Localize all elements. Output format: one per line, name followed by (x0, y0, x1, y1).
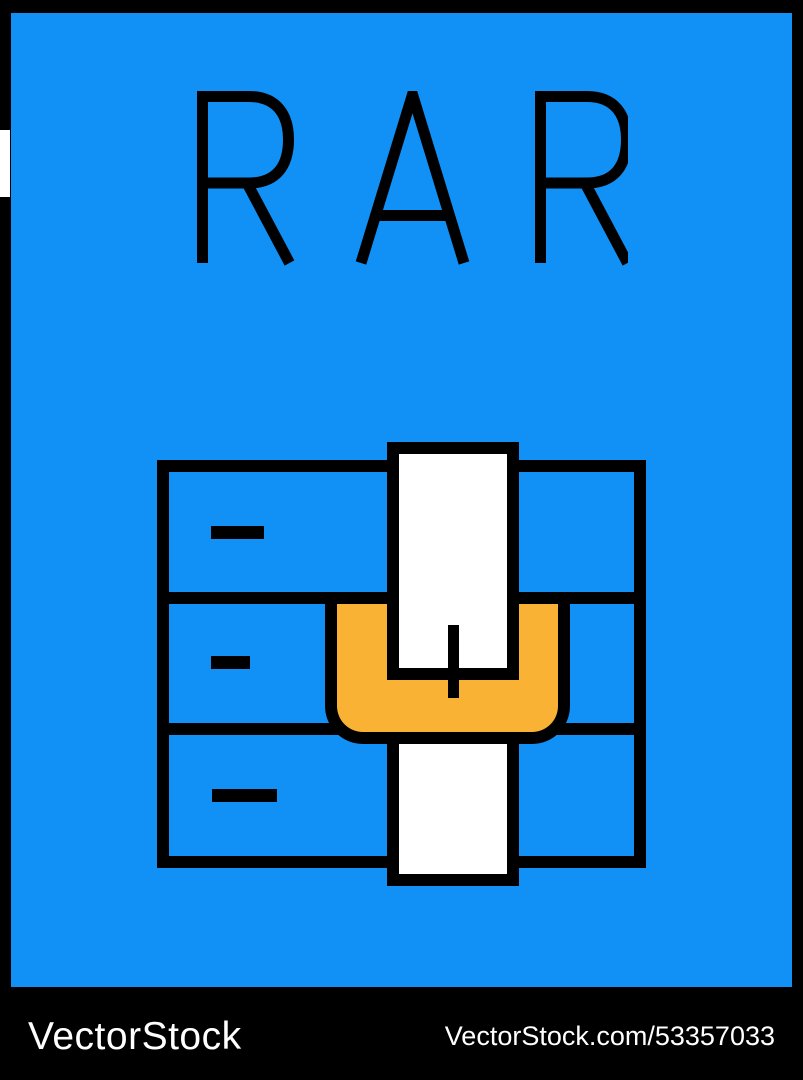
zipper-bottom-tab-icon (387, 744, 519, 886)
watermark-attribution-url: VectorStock.com/53357033 (445, 1021, 775, 1052)
stock-image-canvas: VectorStock VectorStock.com/53357033 (0, 0, 803, 1080)
title-letter-R (541, 97, 628, 264)
drawer-handle-dash-1 (211, 526, 264, 539)
vectorstock-brand-logo: VectorStock (28, 1015, 242, 1059)
watermark-bar: VectorStock VectorStock.com/53357033 (0, 987, 803, 1080)
title-letter-R (203, 97, 290, 264)
zipper-pull-pin-icon (448, 625, 459, 698)
drawer-handle-dash-2 (211, 656, 250, 669)
drawer-handle-dash-3 (212, 789, 277, 802)
title-letter-A (361, 95, 464, 264)
left-edge-notch (0, 130, 10, 197)
poster-title-rar (197, 91, 628, 269)
